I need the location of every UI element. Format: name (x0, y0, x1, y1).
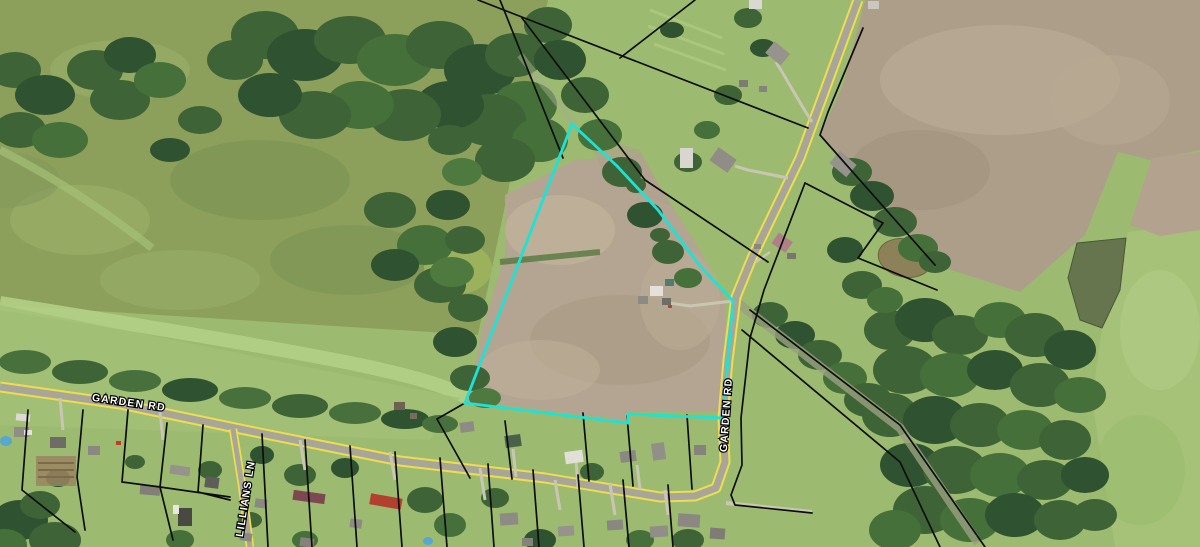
map-canvas[interactable]: GARDEN RD GARDEN RD LILLIANS LN (0, 0, 1200, 547)
aerial-map: GARDEN RD GARDEN RD LILLIANS LN (0, 0, 1200, 547)
